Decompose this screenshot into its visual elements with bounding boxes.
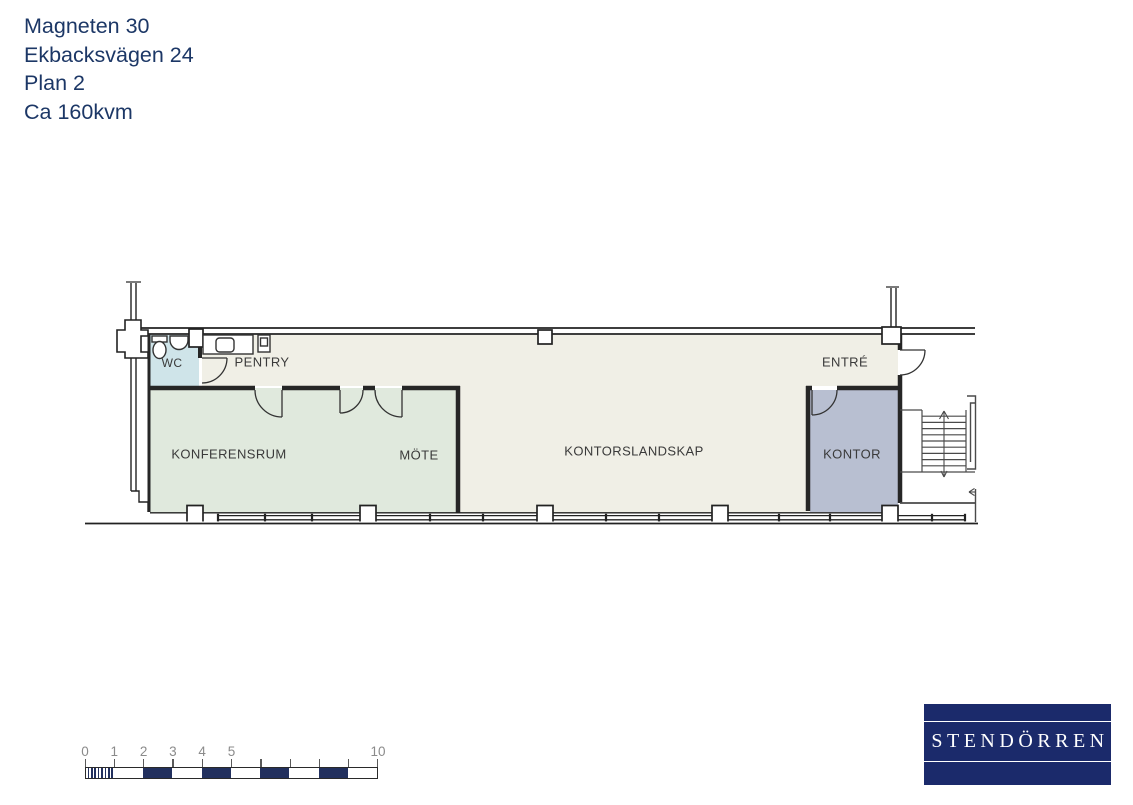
scale-tick [319,759,320,767]
scale-tick [143,759,144,767]
scale-number-3: 3 [169,744,177,759]
stairwell [900,396,976,522]
room-label-pentry: PENTRY [235,355,290,370]
scale-number-2: 2 [140,744,148,759]
scale-segment [202,768,231,778]
scale-segment [260,768,289,778]
scale-tick [114,759,115,767]
scale-number-0: 0 [81,744,89,759]
scale-tick [348,759,349,767]
entre-door [900,350,925,375]
room-label-entre: ENTRÉ [822,355,868,370]
logo-rules: STENDÖRREN [924,721,1111,762]
pentry-counter [203,335,253,354]
scale-tick [290,759,291,767]
scale-tick [172,759,173,767]
room-label-kontor: KONTOR [823,447,881,462]
column-mid [538,330,552,344]
logo-text: STENDÖRREN [926,730,1108,753]
scale-tick [377,759,378,767]
scale-number-1: 1 [111,744,119,759]
scale-bar: 0 1 2 3 4 5 10 [85,744,381,780]
column-pentry [189,329,203,347]
pentry-appliance [258,335,270,352]
scale-tick [260,759,261,767]
scale-number-5: 5 [228,744,236,759]
scale-segment [319,768,348,778]
scale-number-10: 10 [370,744,385,759]
down-run-arrow [969,488,976,522]
scale-tick [202,759,203,767]
scale-tick [85,759,86,767]
room-label-konferensrum: KONFERENSRUM [171,447,286,462]
room-label-mote: MÖTE [399,448,438,463]
scale-tick [231,759,232,767]
scale-bar-rule [85,767,378,779]
floor-plan-drawing [0,0,1133,805]
room-label-kontorslandskap: KONTORSLANDSKAP [564,444,703,459]
stair-direction-arrow [940,411,949,477]
sink-icon [170,336,188,350]
stair-railing [967,396,976,469]
scale-number-4: 4 [198,744,206,759]
column-right [882,327,901,344]
room-label-wc: WC [162,356,183,370]
stendorren-logo: STENDÖRREN [924,704,1111,785]
scale-segment [143,768,172,778]
